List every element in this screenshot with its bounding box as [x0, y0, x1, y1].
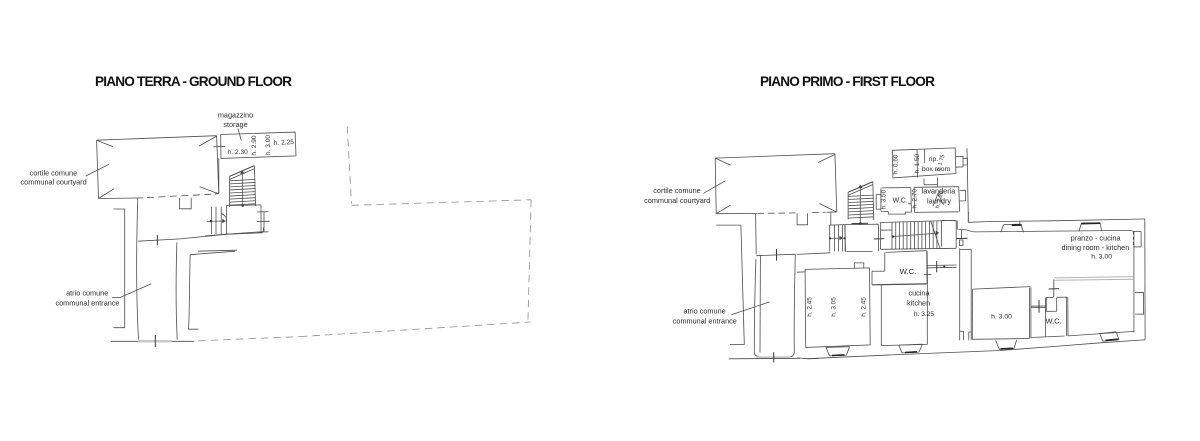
svg-text:atrio comune: atrio comune	[66, 288, 108, 297]
svg-text:cortile comune: cortile comune	[653, 186, 700, 195]
svg-text:storage: storage	[223, 120, 247, 129]
svg-text:communal courtyard: communal courtyard	[644, 196, 710, 205]
svg-text:h. 3.00: h. 3.00	[991, 313, 1012, 320]
svg-text:communal entrance: communal entrance	[673, 316, 737, 325]
svg-text:W.C.: W.C.	[900, 267, 916, 276]
svg-text:h. 3.00: h. 3.00	[265, 135, 272, 155]
svg-text:W.C.: W.C.	[893, 198, 908, 205]
svg-text:atrio comune: atrio comune	[684, 306, 726, 315]
svg-text:cucina: cucina	[908, 289, 930, 298]
svg-text:dining room - kitchen: dining room - kitchen	[1062, 243, 1130, 252]
svg-text:h. 2.45: h. 2.45	[861, 297, 868, 317]
svg-text:h. 3.25: h. 3.25	[914, 311, 934, 318]
svg-text:h. 2.30: h. 2.30	[228, 149, 248, 156]
svg-text:PIANO TERRA - GROUND FLOOR: PIANO TERRA - GROUND FLOOR	[95, 74, 292, 89]
svg-text:h. 3.50: h. 3.50	[881, 189, 888, 209]
svg-text:h. 3.00: h. 3.00	[1091, 253, 1112, 260]
svg-text:h. 1.50: h. 1.50	[914, 153, 921, 173]
svg-text:h. 2.90: h. 2.90	[251, 135, 258, 155]
svg-text:h. 2.25: h. 2.25	[274, 139, 295, 147]
svg-text:h. 2.70: h. 2.70	[912, 189, 919, 209]
svg-text:communal courtyard: communal courtyard	[21, 177, 87, 186]
svg-text:h. 0.60: h. 0.60	[893, 154, 900, 174]
svg-text:W.C.: W.C.	[1046, 316, 1062, 325]
svg-text:rip.: rip.	[929, 156, 939, 163]
svg-text:pranzo - cucina: pranzo - cucina	[1071, 234, 1122, 243]
svg-text:cortile comune: cortile comune	[30, 168, 77, 177]
svg-text:magazzino: magazzino	[218, 111, 253, 120]
svg-text:kitchen: kitchen	[907, 299, 930, 308]
svg-text:h. 2.45: h. 2.45	[807, 297, 814, 317]
svg-text:PIANO PRIMO - FIRST FLOOR: PIANO PRIMO - FIRST FLOOR	[760, 74, 935, 89]
svg-text:communal entrance: communal entrance	[55, 298, 119, 307]
svg-text:h. 3.05: h. 3.05	[830, 297, 837, 317]
